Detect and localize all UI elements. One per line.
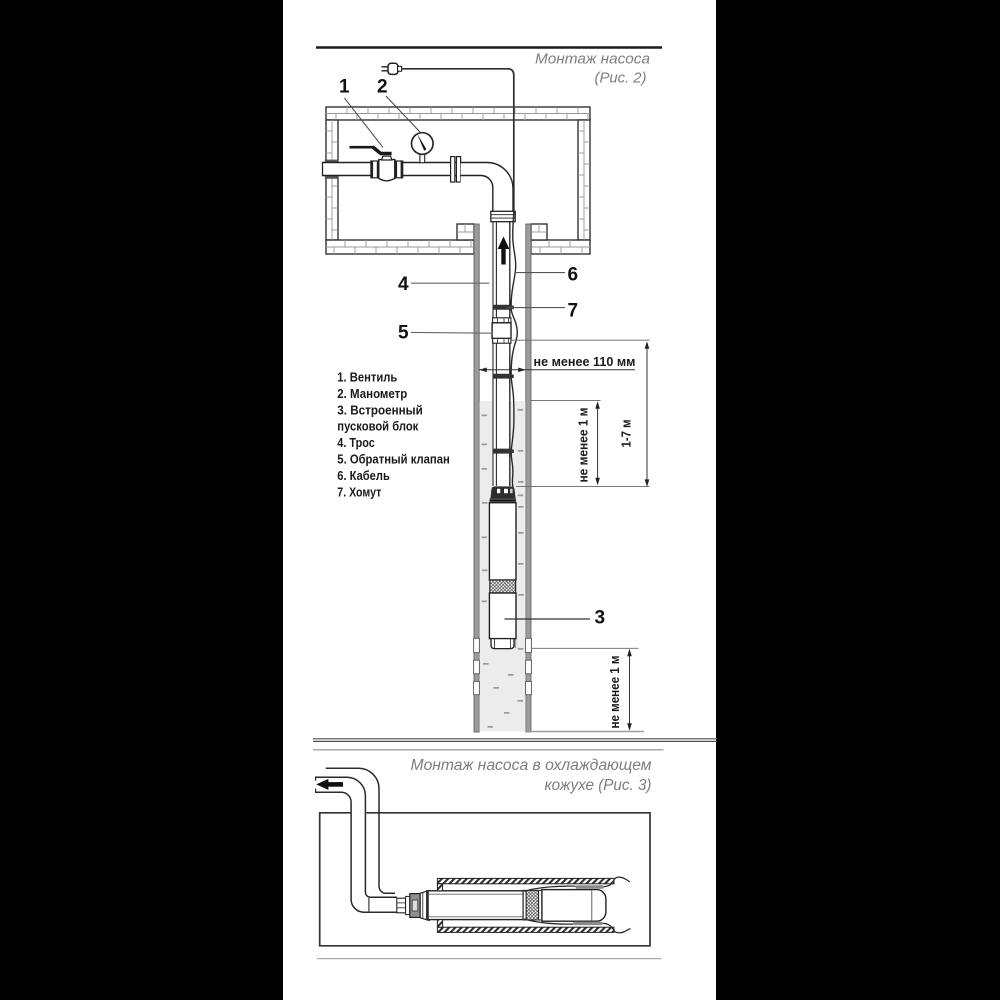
svg-text:пусковой блок: пусковой блок [337,419,418,434]
svg-text:(Рис. 2): (Рис. 2) [595,70,647,87]
svg-text:4: 4 [398,274,409,295]
svg-text:3. Встроенный: 3. Встроенный [337,402,423,417]
svg-text:7: 7 [568,301,579,322]
svg-text:5. Обратный клапан: 5. Обратный клапан [337,452,450,467]
svg-text:7. Хомут: 7. Хомут [337,484,381,499]
svg-text:2. Манометр: 2. Манометр [337,386,407,401]
svg-text:Монтаж насоса: Монтаж насоса [535,51,650,68]
svg-text:не менее 1 м: не менее 1 м [607,656,622,729]
svg-text:1. Вентиль: 1. Вентиль [337,370,397,385]
svg-text:Монтаж насоса в охлаждающем: Монтаж насоса в охлаждающем [411,757,652,774]
svg-text:4. Трос: 4. Трос [337,435,375,450]
svg-text:2: 2 [377,77,388,98]
svg-text:1: 1 [339,77,350,98]
svg-text:не менее 110 мм: не менее 110 мм [534,354,636,369]
svg-text:6. Кабель: 6. Кабель [337,468,390,483]
svg-text:не менее 1 м: не менее 1 м [576,408,591,483]
svg-text:6: 6 [568,265,579,286]
svg-text:5: 5 [398,323,409,344]
svg-text:3: 3 [595,608,606,629]
svg-text:1-7 м: 1-7 м [619,420,634,448]
svg-text:кожухе (Рис. 3): кожухе (Рис. 3) [545,777,652,794]
